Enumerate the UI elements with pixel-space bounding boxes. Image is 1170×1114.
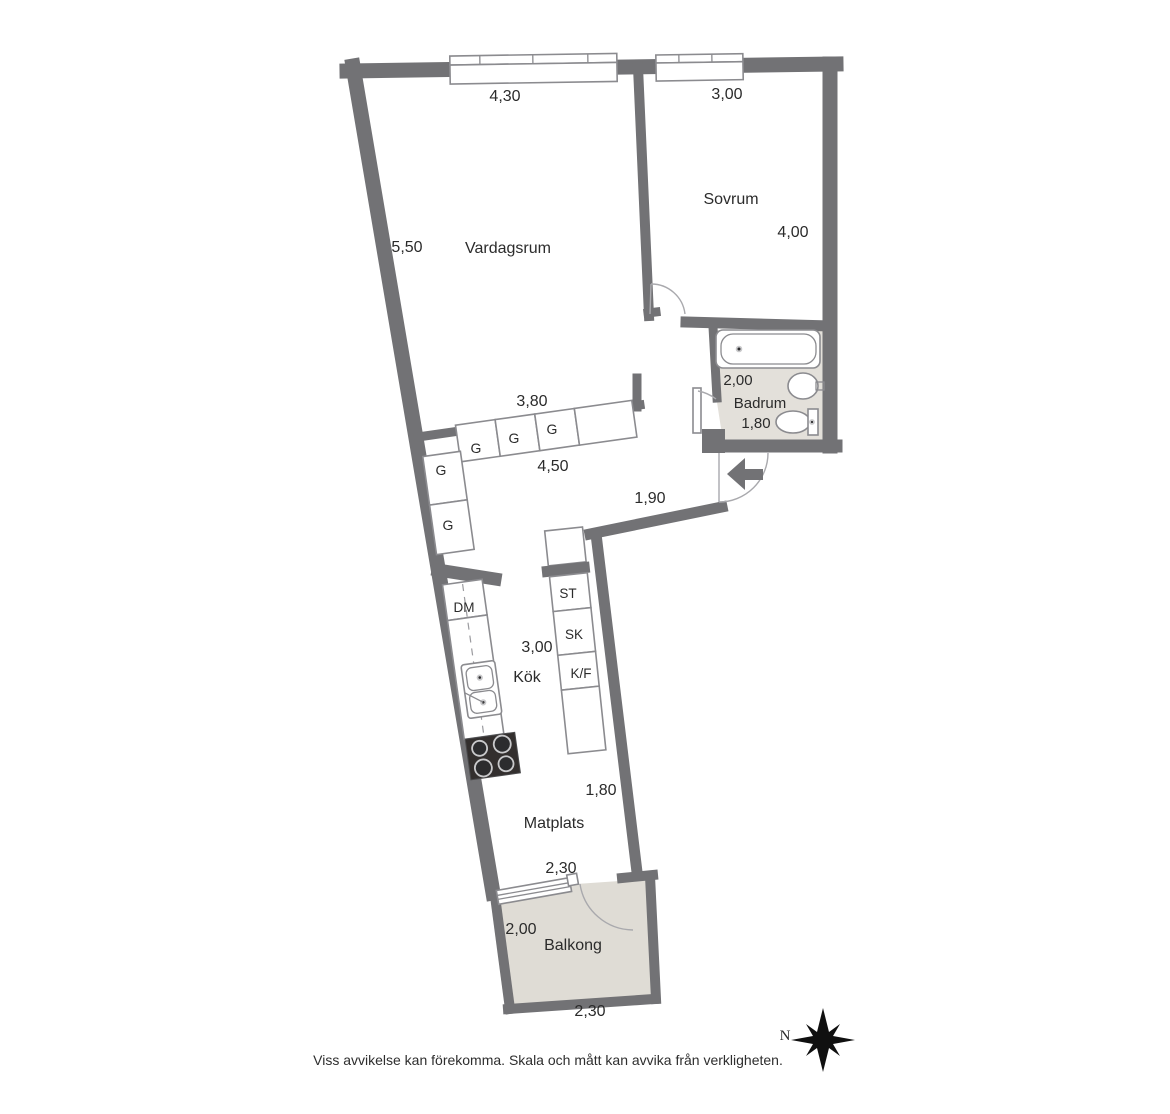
wall-bathroom-corner-block <box>702 429 725 453</box>
sink-drain <box>477 675 482 680</box>
compass-rose: N <box>780 1008 855 1072</box>
cabinet-st-label: ST <box>559 586 576 601</box>
wardrobe-cell <box>423 451 467 505</box>
window-bedroom <box>656 54 743 81</box>
floorplan-page: 4,30 3,00 5,50 Vardagsrum Sovrum 4,00 3,… <box>0 0 1170 1114</box>
bathtub-drain <box>737 347 742 352</box>
room-label-matplats: Matplats <box>524 815 584 832</box>
cabinet-kf-label: K/F <box>570 666 591 681</box>
dim-sovrum-height: 4,00 <box>777 224 808 241</box>
room-label-sovrum: Sovrum <box>703 191 758 208</box>
sink-drain <box>481 700 486 705</box>
wall-bathroom-top <box>686 322 830 326</box>
wall-hall-bottom <box>590 507 722 534</box>
floorplan-svg: 4,30 3,00 5,50 Vardagsrum Sovrum 4,00 3,… <box>0 0 1170 1114</box>
bathtub <box>716 330 820 368</box>
closet-cell <box>574 400 637 445</box>
toilet <box>776 409 818 435</box>
stove-burner <box>498 755 515 772</box>
dim-balkong-depth: 2,00 <box>505 921 536 938</box>
dim-sovrum-width: 3,00 <box>711 86 742 103</box>
wardrobe-label: G <box>443 517 454 533</box>
entry-arrow-icon <box>727 458 763 490</box>
dim-balkong-width: 2,30 <box>574 1003 605 1020</box>
door-entry <box>719 453 768 502</box>
window-livingroom <box>450 53 617 84</box>
cabinet-cell <box>561 686 605 754</box>
dim-matplats-width: 1,80 <box>585 782 616 799</box>
dim-vardagsrum-width: 4,30 <box>489 88 520 105</box>
room-label-badrum: Badrum <box>734 395 787 412</box>
dim-kok-length: 3,00 <box>521 639 552 656</box>
compass-north-label: N <box>780 1028 791 1044</box>
wardrobe-label: G <box>509 430 520 446</box>
stove <box>465 732 520 780</box>
dim-vardagsrum-height: 5,50 <box>391 239 422 256</box>
cabinet-sk-label: SK <box>565 627 583 642</box>
wall-hall-kitchen-stub <box>438 570 495 579</box>
wall-balcony-right <box>650 876 656 999</box>
dishwasher-label: DM <box>454 600 475 615</box>
disclaimer-text: Viss avvikelse kan förekomma. Skala och … <box>313 1052 783 1068</box>
wall-bedroom-divider-jamb <box>648 312 656 313</box>
dim-balcony-wall: 2,30 <box>545 860 576 877</box>
wall-kitchen-right <box>596 534 637 872</box>
dim-entry-depth: 1,90 <box>634 490 665 507</box>
dim-hall-wall: 3,80 <box>516 393 547 410</box>
wall-bedroom-divider <box>638 67 649 316</box>
room-label-vardagsrum: Vardagsrum <box>465 240 551 257</box>
room-label-kok: Kök <box>513 669 542 686</box>
wardrobe-label: G <box>471 440 482 456</box>
closet-cell <box>545 527 586 566</box>
dim-hall-width: 4,50 <box>537 458 568 475</box>
stove-burner <box>471 740 488 757</box>
wardrobe-label: G <box>436 462 447 478</box>
wardrobe-label: G <box>547 421 558 437</box>
dim-badrum-width: 2,00 <box>723 372 752 389</box>
dim-badrum-depth: 1,80 <box>741 415 770 432</box>
room-label-balkong: Balkong <box>544 937 602 954</box>
